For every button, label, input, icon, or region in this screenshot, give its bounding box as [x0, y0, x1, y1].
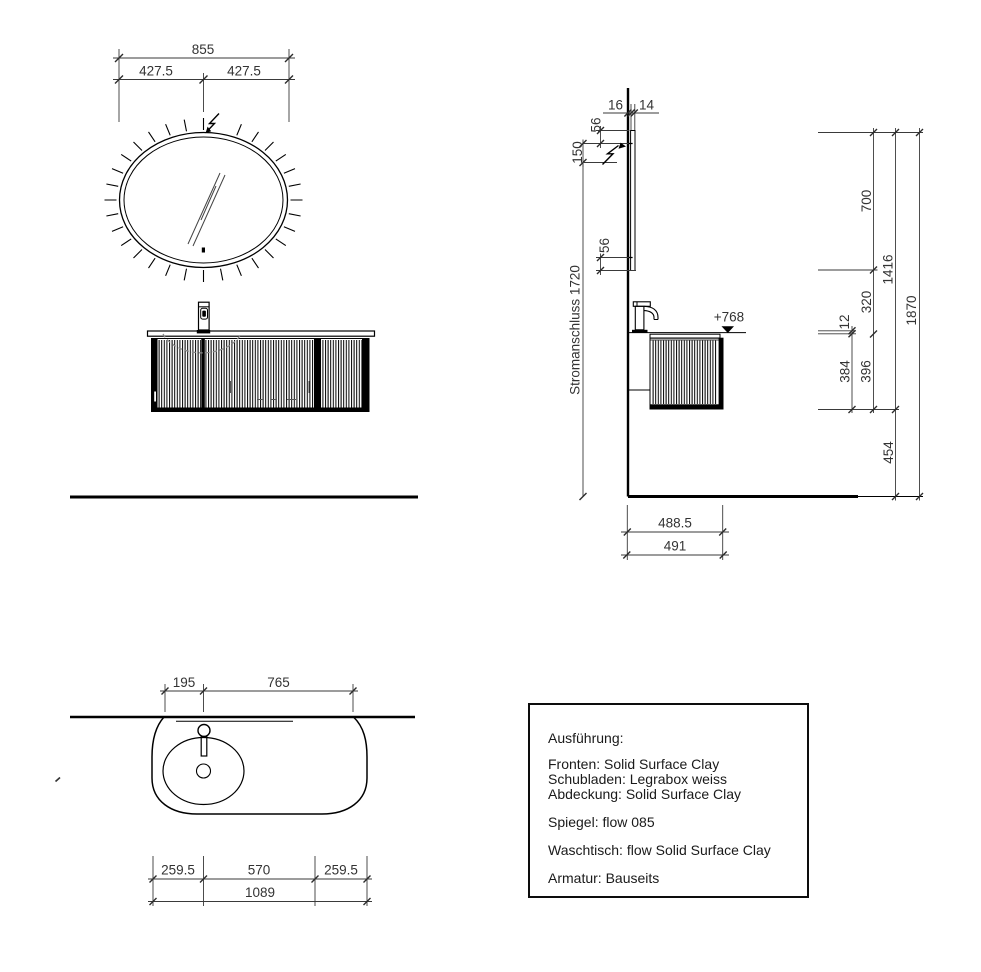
- side-view: 16 14 56 150 56 Stromanschluss 1720: [568, 88, 924, 560]
- faucet-side-spout: [644, 306, 658, 319]
- countertop-front: [148, 331, 375, 336]
- faucet-detail-dark: [202, 311, 206, 317]
- plan-view: 195 765 259.5 570 259.5 1089: [70, 675, 415, 906]
- cabinet-divider-2: [314, 339, 321, 412]
- plan-top-dimensions: 195 765: [160, 675, 358, 712]
- mirror-reflection-lines: [188, 173, 225, 246]
- dim-counter-level: +768: [714, 310, 744, 325]
- front-view: 855 427.5 427.5: [70, 42, 418, 497]
- dim-led-top: 56: [589, 117, 604, 132]
- countertop-side: [650, 334, 720, 338]
- drain-plan: [197, 764, 211, 778]
- dim-front-total: 855: [192, 42, 215, 57]
- stray-mark: [56, 778, 61, 782]
- technical-drawing-sheet: 855 427.5 427.5: [0, 0, 981, 972]
- dim-plan-total: 1089: [245, 885, 275, 900]
- cabinet-side-bottom-edge: [650, 404, 723, 409]
- cabinet-side-flutes: [652, 341, 718, 405]
- plan-bottom-dimensions: 259.5 570 259.5 1089: [148, 856, 372, 906]
- spec-waschtisch: Waschtisch: flow Solid Surface Clay: [548, 842, 771, 858]
- front-dimensions: 855 427.5 427.5: [113, 42, 295, 122]
- dim-electrical-offset: 150: [570, 141, 585, 164]
- specification-box: Ausführung: Fronten: Solid Surface Clay …: [528, 703, 809, 898]
- cabinet-side: [628, 338, 723, 409]
- dim-front-left: 427.5: [139, 64, 173, 79]
- level-triangle-icon: [722, 326, 735, 333]
- spec-materials-group: Fronten: Solid Surface Clay Schubladen: …: [548, 757, 741, 801]
- faucet-plan-head: [198, 725, 210, 737]
- dim-line-1720: [583, 163, 617, 497]
- mirror-sensor-dot: [202, 248, 205, 253]
- faucet-side-body: [635, 306, 644, 330]
- cabinet-right-edge: [362, 339, 369, 412]
- side-top-dimensions: 16 14: [603, 98, 659, 132]
- dim-basin-to-right: 765: [267, 675, 290, 690]
- cabinet-bottom-edge: [152, 408, 370, 413]
- dim-front-right: 427.5: [227, 64, 261, 79]
- dim-overhang-left: 259.5: [161, 863, 195, 878]
- vanity-plan-outline: [152, 717, 367, 814]
- lightning-bolt-side-icon: [603, 143, 627, 165]
- spec-spiegel: Spiegel: flow 085: [548, 814, 655, 830]
- spec-schubladen: Schubladen: Legrabox weiss: [548, 772, 741, 787]
- dim-basin-span: 570: [248, 863, 271, 878]
- dim-depth-total: 491: [664, 539, 687, 554]
- dim-counter-thickness: 12: [837, 314, 852, 329]
- dim-led-bottom: 56: [597, 238, 612, 253]
- dim-mirror-thickness: 14: [639, 98, 655, 113]
- mirror-outer-edge: [120, 133, 288, 268]
- spec-fronten: Fronten: Solid Surface Clay: [548, 757, 741, 772]
- faucet-plan-stem: [201, 737, 207, 757]
- vanity-front: [148, 302, 375, 412]
- faucet-side: [632, 302, 658, 333]
- faucet-side-lever: [633, 302, 650, 307]
- side-left-dimensions: 56 150 56 Stromanschluss 1720: [568, 117, 637, 500]
- front-extension-lines: [119, 49, 289, 122]
- dim-wall-offset: 16: [608, 98, 623, 113]
- spec-title: Ausführung:: [548, 730, 624, 746]
- dim-depth-counter: 488.5: [658, 516, 692, 531]
- mirror-front: [105, 114, 303, 283]
- faucet-front: [197, 302, 210, 333]
- side-depth-dimensions: 488.5 491: [621, 505, 729, 560]
- cabinet-flutes-right: [321, 340, 362, 408]
- spec-armatur: Armatur: Bauseits: [548, 870, 659, 886]
- drawing-svg: 855 427.5 427.5: [0, 0, 981, 972]
- mirror-side-profile: [631, 131, 635, 271]
- side-height-dimensions: 12 384 700 320 396 1416 454 1870: [818, 128, 923, 501]
- dim-overhang-right: 259.5: [324, 863, 358, 878]
- dim-counter-to-cabinet-bottom: 396: [859, 360, 874, 383]
- dim-cabinet-height: 384: [838, 360, 853, 383]
- cabinet-flutes-left: [158, 340, 202, 408]
- cabinet-side-front-edge: [719, 338, 723, 409]
- dim-stromanschluss: Stromanschluss 1720: [568, 265, 583, 395]
- mirror-extension-lines: [631, 104, 635, 131]
- dim-mirror-top-to-cabinet: 1416: [881, 254, 896, 284]
- dim-cabinet-clearance: 454: [881, 441, 896, 464]
- mirror-rays: [105, 118, 303, 282]
- basin-plan-outline: [163, 738, 244, 805]
- lightning-bolt-icon: [206, 114, 220, 134]
- dim-mirror-to-counter: 320: [859, 291, 874, 314]
- dim-basin-offset: 195: [173, 675, 196, 690]
- dim-mirror-height: 700: [859, 190, 874, 213]
- cabinet-divider-1: [201, 339, 205, 412]
- dim-height-total: 1870: [904, 295, 919, 325]
- cabinet-left-gap: [154, 392, 156, 402]
- mirror-inner-edge: [124, 137, 283, 263]
- spec-abdeckung: Abdeckung: Solid Surface Clay: [548, 787, 741, 802]
